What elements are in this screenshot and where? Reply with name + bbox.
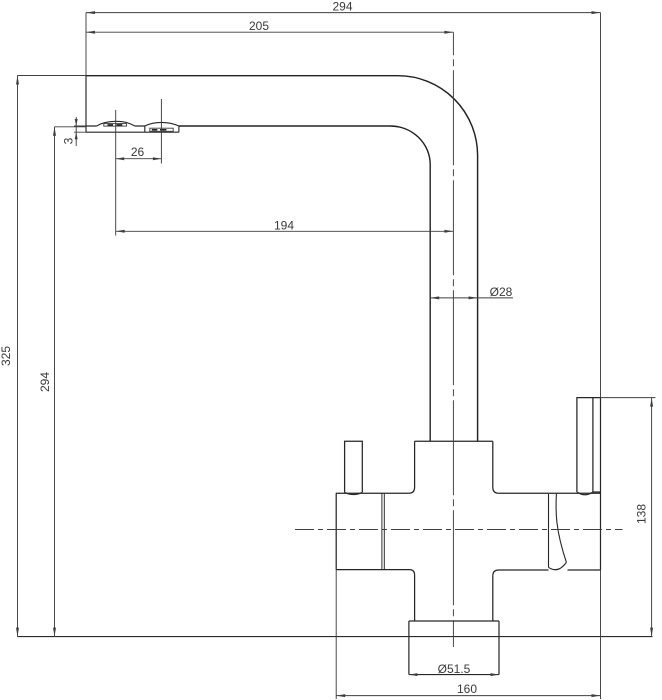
svg-text:325: 325 (0, 346, 13, 366)
svg-text:294: 294 (38, 372, 52, 392)
svg-text:194: 194 (274, 218, 294, 232)
svg-text:294: 294 (332, 0, 352, 13)
svg-text:160: 160 (457, 682, 477, 696)
svg-text:Ø28: Ø28 (490, 285, 513, 299)
svg-text:3: 3 (62, 137, 76, 144)
svg-text:26: 26 (131, 145, 145, 159)
svg-text:Ø51.5: Ø51.5 (438, 662, 471, 676)
svg-text:205: 205 (249, 19, 269, 33)
svg-text:138: 138 (635, 504, 649, 524)
